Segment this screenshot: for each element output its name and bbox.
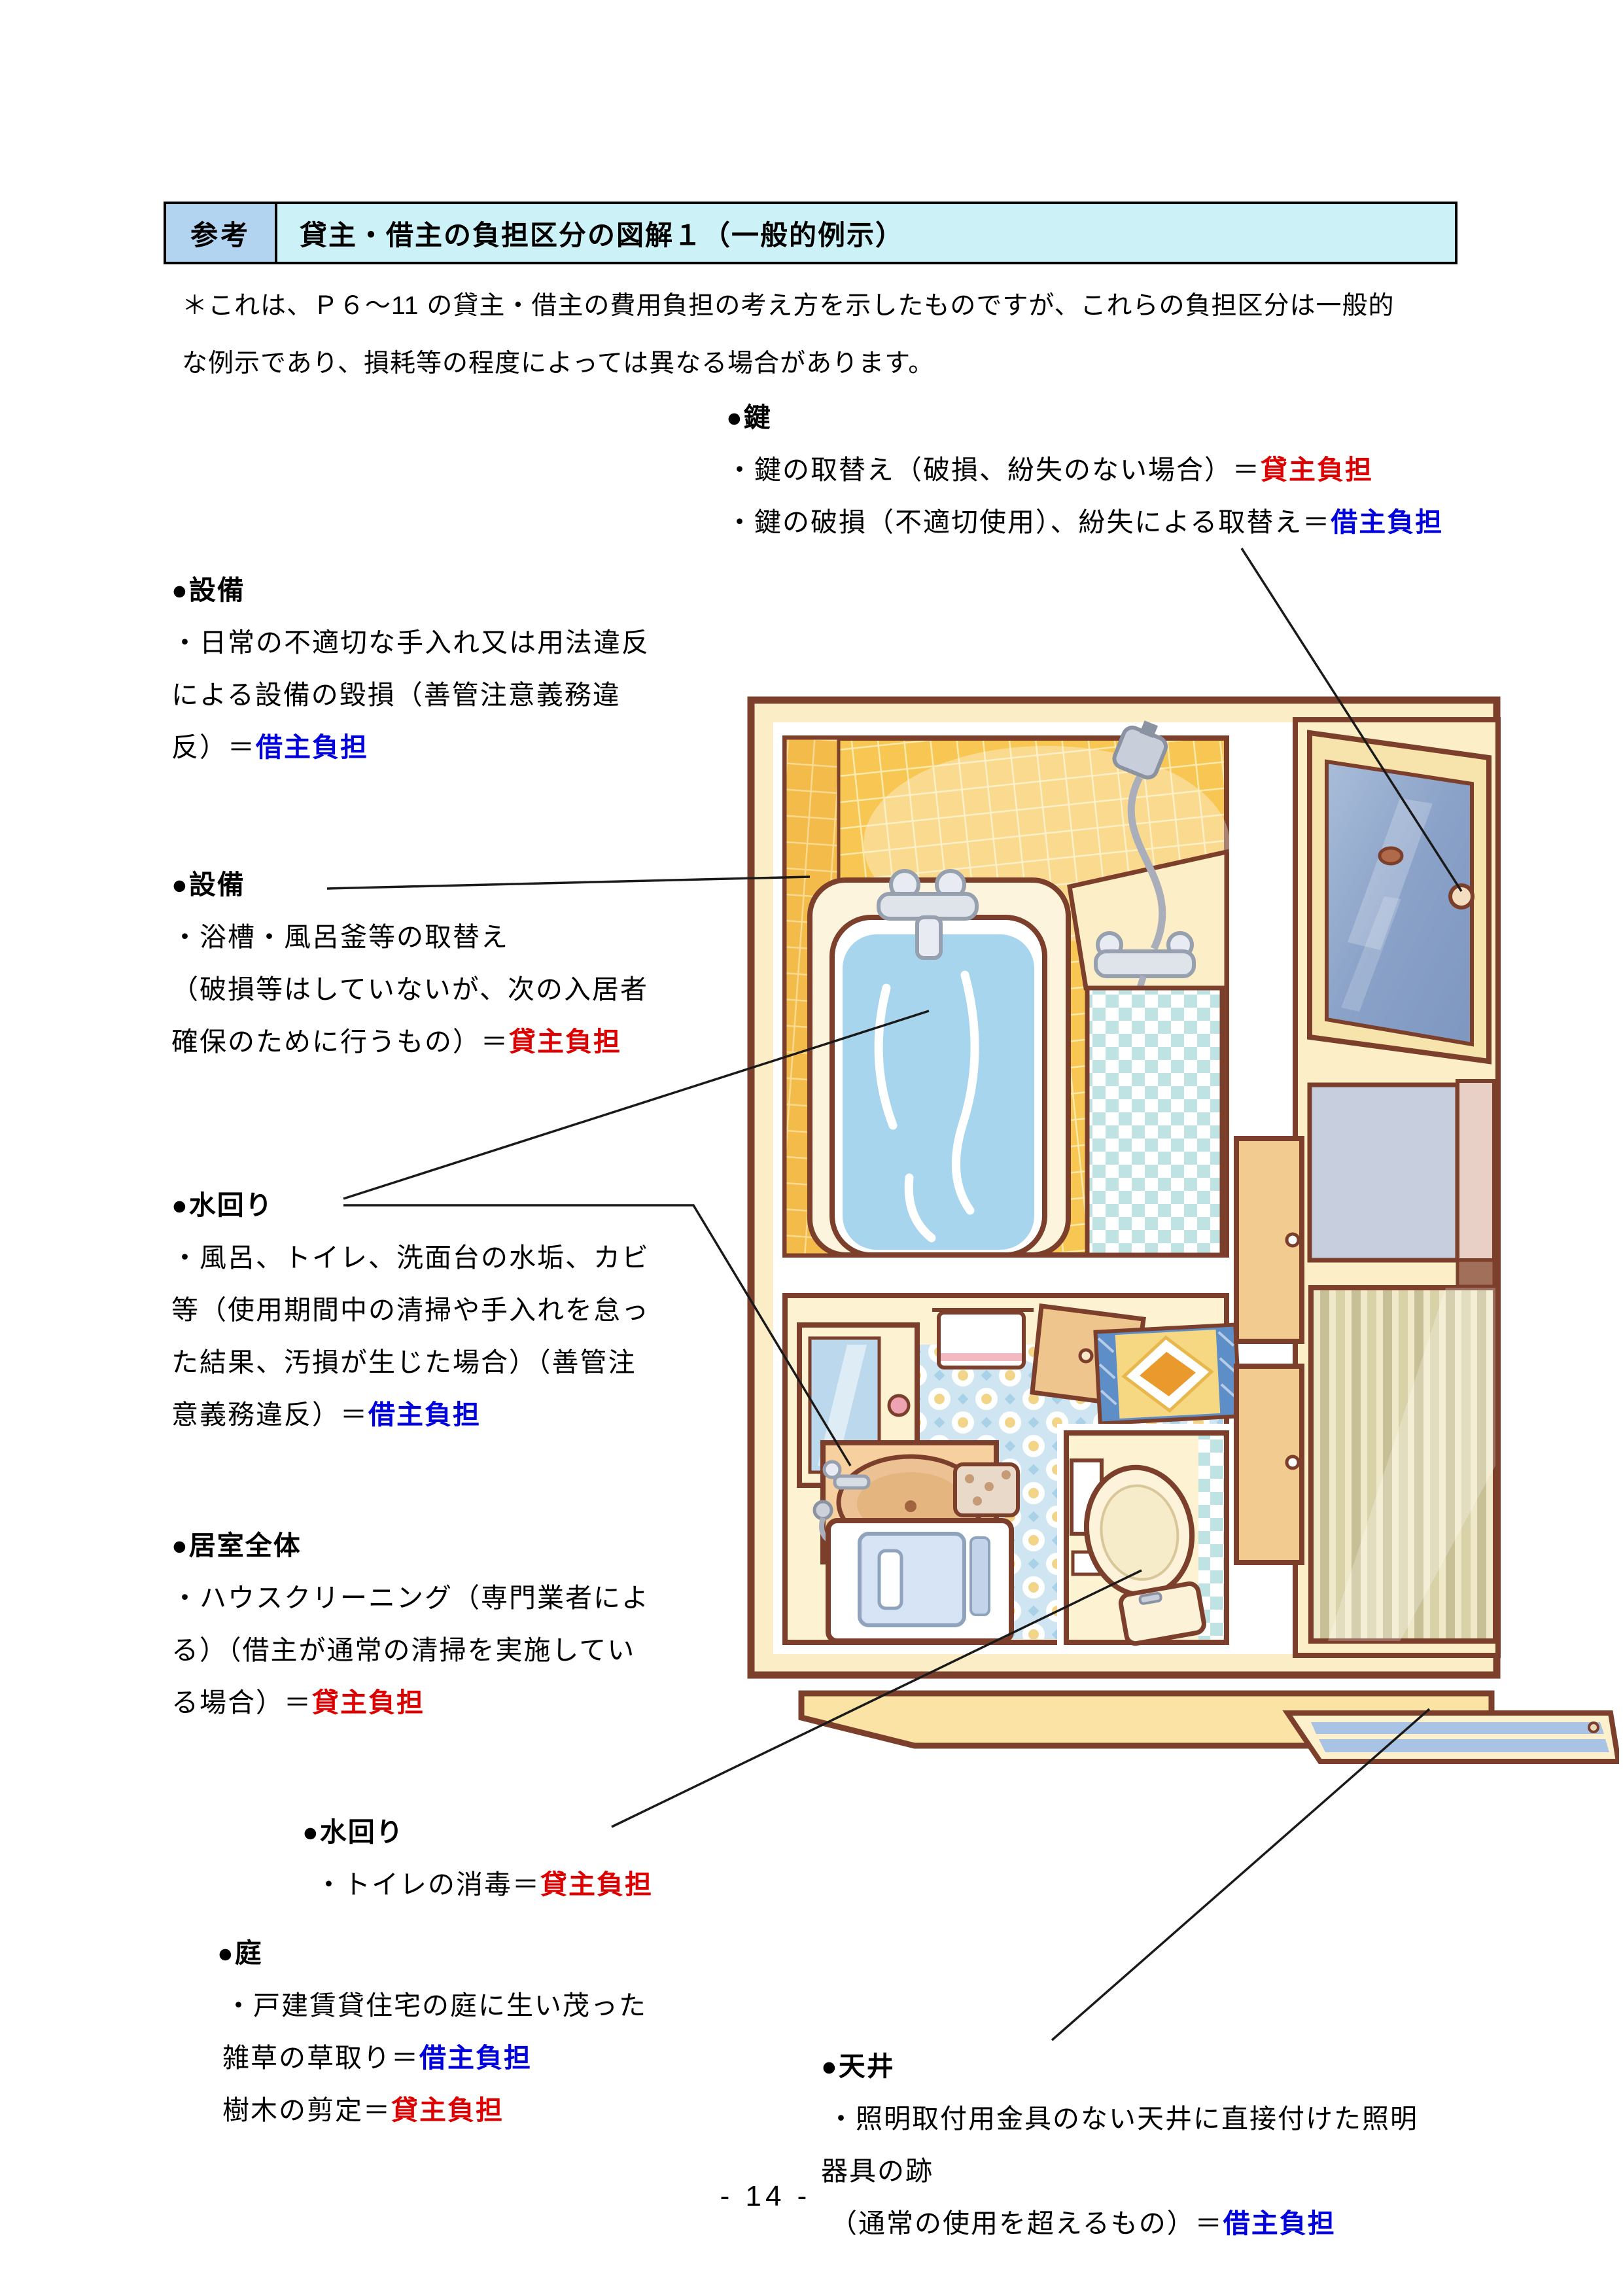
water-tap (814, 1502, 831, 1519)
section-water-areas-1: ●水回り ・風呂、トイレ、洗面台の水垢、カビ 等（使用期間中の清掃や手入れを怠っ… (171, 1179, 650, 1441)
bathroom-cutaway-illustration (739, 680, 1619, 1793)
landlord-burden: 貸主負担 (540, 1869, 653, 1899)
section-whole-room: ●居室全体 ・ハウスクリーニング（専門業者によ る）（借主が通常の清掃を実施して… (171, 1519, 650, 1729)
sliding-door-rail (1287, 1713, 1618, 1761)
section-water-areas-1-label: ●水回り (171, 1179, 650, 1231)
entrance-door (1310, 733, 1489, 1061)
tenant-burden: 借主負担 (1223, 2208, 1336, 2238)
landlord-burden: 貸主負担 (312, 1687, 425, 1718)
section-equipment-1-label: ●設備 (171, 564, 650, 616)
section-equipment-2-label: ●設備 (171, 858, 648, 911)
cabinet-knob (889, 1396, 909, 1415)
landlord-burden: 貸主負担 (1261, 455, 1373, 485)
section-key-label: ●鍵 (726, 391, 1443, 444)
section-key: ●鍵 ・鍵の取替え（破損、紛失のない場合）＝貸主負担 ・鍵の破損（不適切使用）、… (726, 391, 1443, 548)
bath-mat (1095, 1324, 1240, 1423)
section-key-line: ・鍵の取替え（破損、紛失のない場合）＝貸主負担 (726, 444, 1443, 496)
towel-rack (932, 1310, 1034, 1368)
landlord-burden: 貸主負担 (509, 1027, 621, 1057)
lower-panel (1310, 1085, 1457, 1260)
tenant-burden: 借主負担 (1331, 507, 1443, 537)
bath-water (843, 934, 1034, 1250)
intro-paragraph: ＊これは、Ｐ６～11 の貸主・借主の費用負担の考え方を示したものですが、これらの… (182, 277, 1464, 393)
laundry-basket (955, 1464, 1018, 1515)
section-ceiling-label: ●天井 (821, 2040, 1418, 2093)
tenant-burden: 借主負担 (256, 732, 368, 762)
section-garden: ●庭 ・戸建賃貸住宅の庭に生い茂った 雑草の草取り＝借主負担 樹木の剪定＝貸主負… (217, 1927, 647, 2136)
tenant-burden: 借主負担 (419, 2043, 532, 2073)
toilet-room (1057, 1424, 1236, 1651)
section-water-areas-2-label: ●水回り (302, 1806, 653, 1858)
section-garden-label: ●庭 (217, 1927, 647, 1979)
striped-screen (1311, 1288, 1495, 1641)
checker-wall (1087, 988, 1222, 1255)
washroom (785, 1296, 1240, 1651)
section-key-line: ・鍵の破損（不適切使用）、紛失による取替え＝借主負担 (726, 496, 1443, 548)
washing-machine (814, 1502, 1011, 1641)
section-whole-room-label: ●居室全体 (171, 1519, 650, 1572)
door-peephole (1380, 848, 1402, 864)
section-water-areas-2: ●水回り ・トイレの消毒＝貸主負担 (302, 1806, 653, 1911)
reference-tag: 参考 (166, 204, 277, 262)
side-wall (1457, 1081, 1494, 1260)
intro-line-1: ＊これは、Ｐ６～11 の貸主・借主の費用負担の考え方を示したものですが、これらの… (182, 277, 1464, 335)
page-number: - 14 - (680, 2180, 850, 2213)
door-knob (1450, 885, 1473, 908)
tenant-burden: 借主負担 (368, 1400, 481, 1430)
section-ceiling: ●天井 ・照明取付用金具のない天井に直接付けた照明 器具の跡 （通常の使用を超え… (821, 2040, 1418, 2250)
basin-faucet (835, 1476, 869, 1488)
bathroom-room (785, 715, 1230, 1255)
page-title: 貸主・借主の負担区分の図解１（一般的例示） (277, 204, 1455, 262)
document-page: { "page": { "number": "- 14 -" }, "heade… (0, 0, 1623, 2296)
landlord-burden: 貸主負担 (391, 2095, 504, 2125)
section-equipment-2: ●設備 ・浴槽・風呂釜等の取替え （破損等はしていないが、次の入居者 確保のため… (171, 858, 648, 1068)
intro-line-2: な例示であり、損耗等の程度によっては異なる場合があります。 (182, 335, 1464, 393)
reference-header: 参考 貸主・借主の負担区分の図解１（一般的例示） (164, 202, 1457, 264)
section-equipment-1: ●設備 ・日常の不適切な手入れ又は用法違反 による設備の毀損（善管注意義務違 反… (171, 564, 650, 773)
